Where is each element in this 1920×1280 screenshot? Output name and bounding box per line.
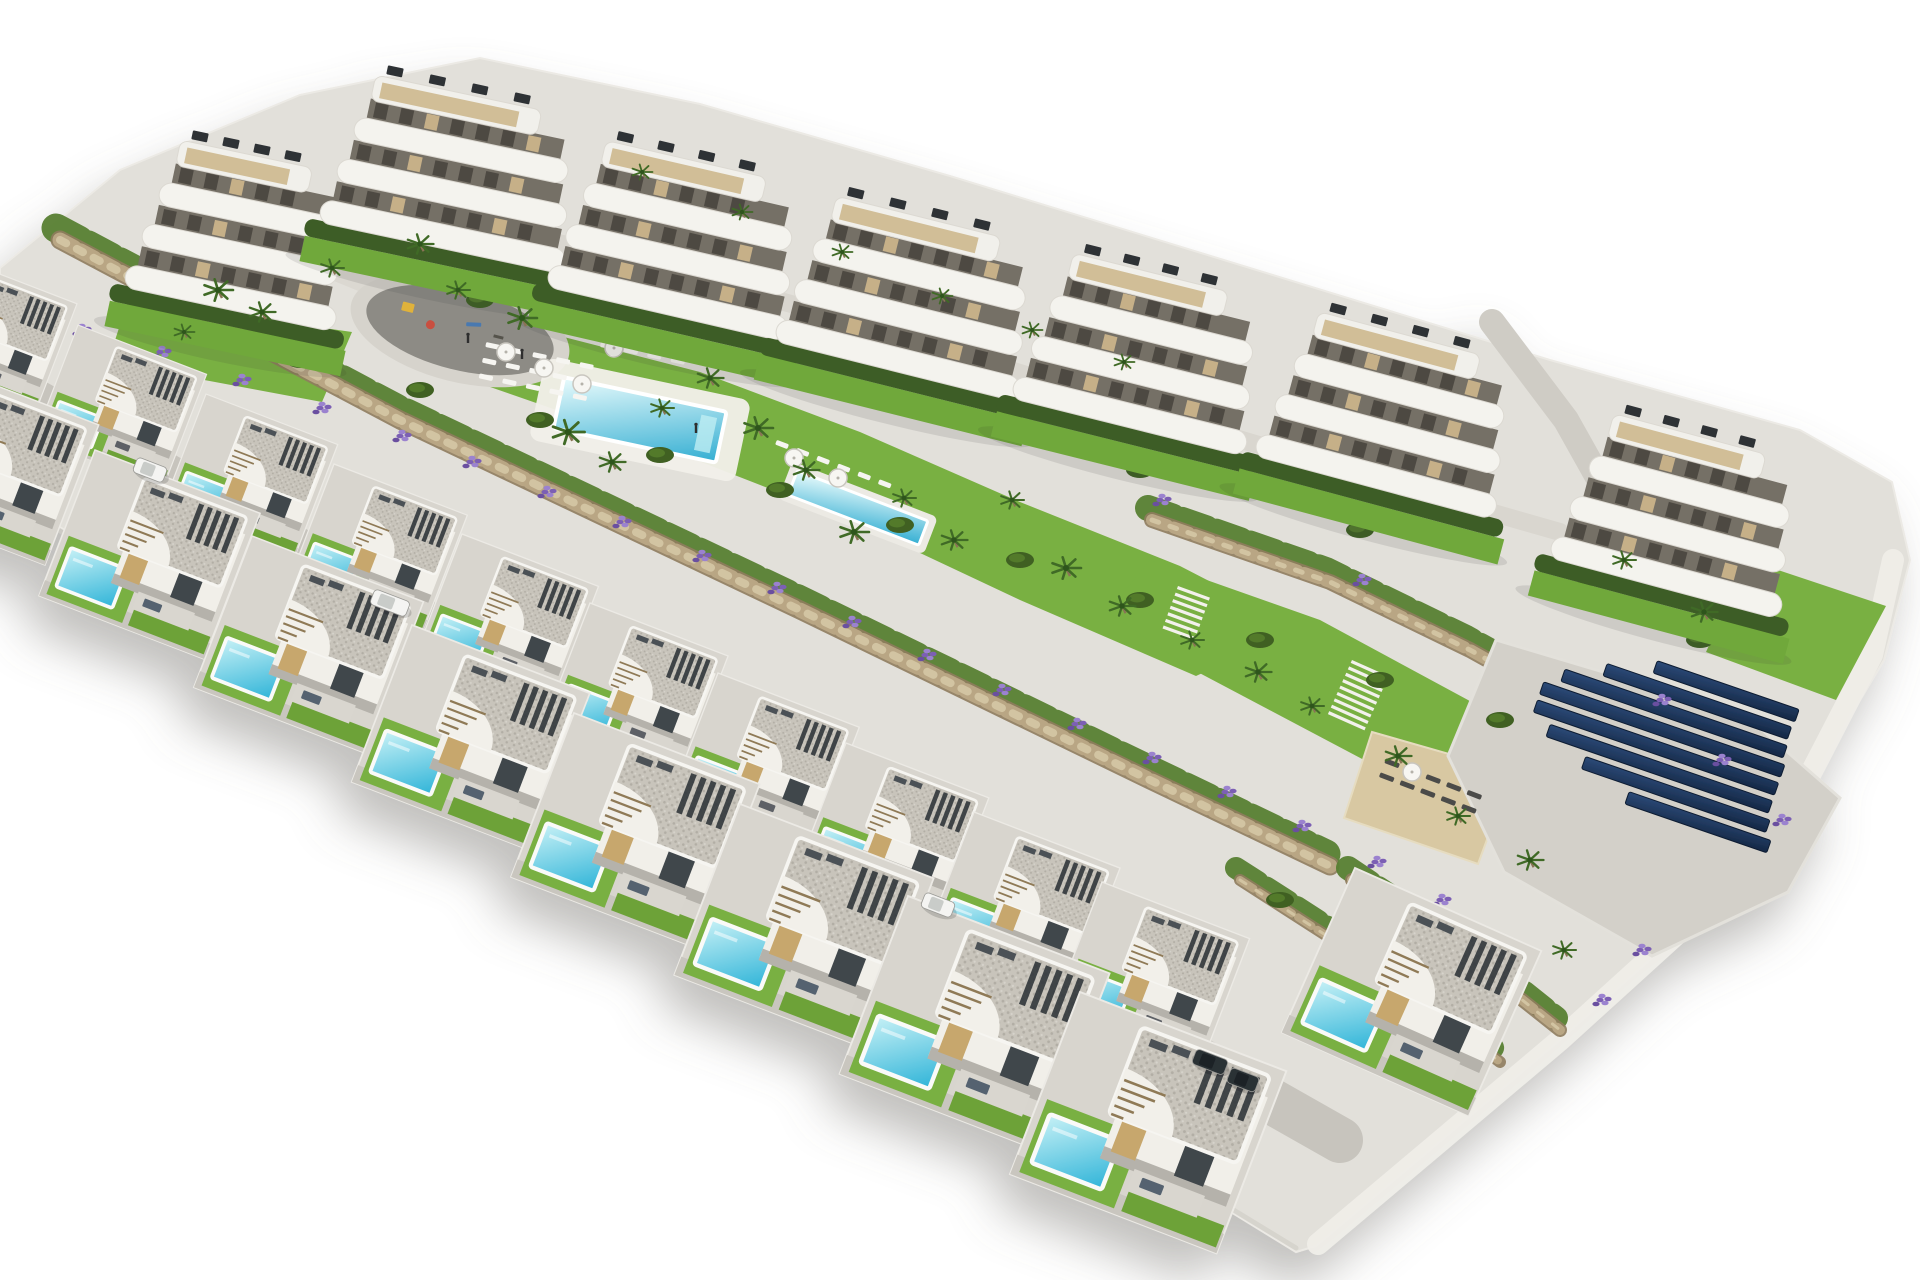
scene-svg — [0, 0, 1920, 1280]
parasol — [785, 449, 803, 467]
development-site — [0, 53, 1910, 1254]
person-figure — [466, 333, 469, 343]
parasol — [535, 359, 553, 377]
architectural-aerial-render — [0, 0, 1920, 1280]
parasol — [573, 375, 591, 393]
parasol — [497, 343, 515, 361]
parasol — [829, 469, 847, 487]
person-figure — [694, 423, 697, 433]
parasol — [1403, 763, 1421, 781]
person-figure — [520, 349, 523, 359]
